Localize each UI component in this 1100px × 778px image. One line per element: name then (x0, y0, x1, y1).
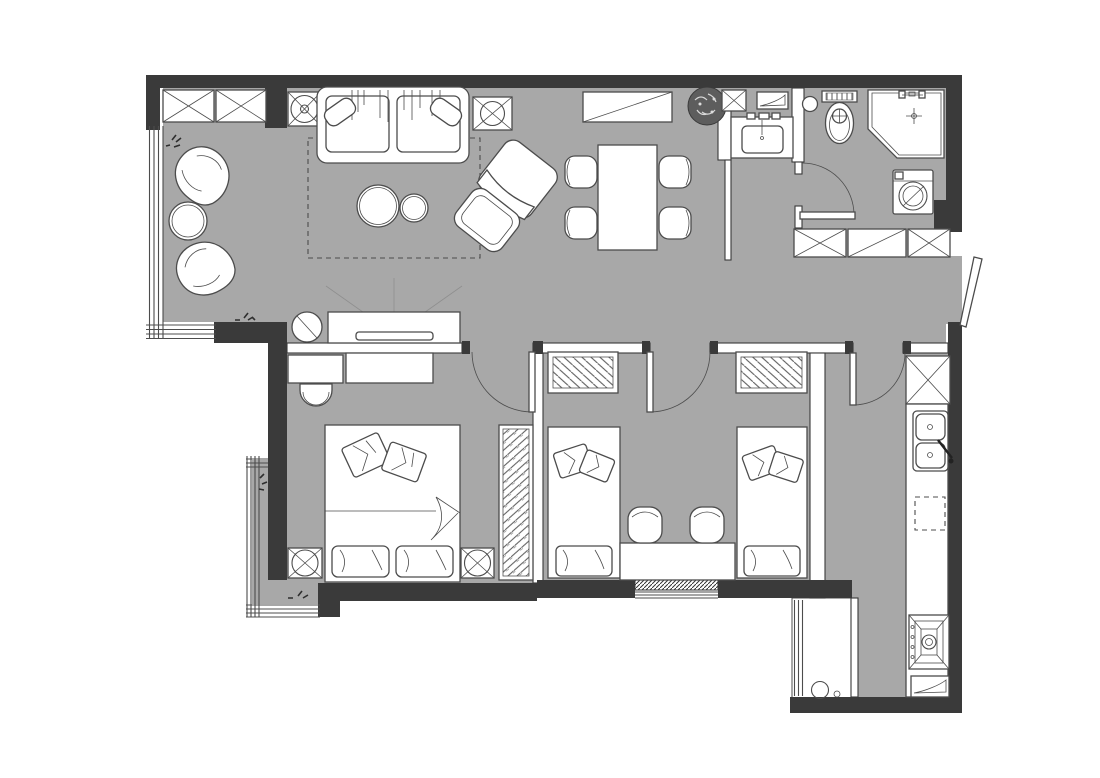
kids-bottom-wall-left (537, 580, 635, 598)
bed-pillow (744, 546, 800, 576)
bottom-wall (790, 697, 962, 713)
single-bed (737, 427, 807, 578)
coffee-table-small (400, 194, 428, 222)
single-bed (548, 427, 620, 578)
round-side-table (169, 202, 207, 240)
dining-chair (659, 207, 691, 239)
master-bottom-notch (318, 593, 340, 617)
wardrobe-pier-wall (265, 88, 287, 128)
potted-plant (688, 87, 726, 125)
bed-pillow (556, 546, 612, 576)
door-post-cap (903, 341, 911, 354)
master-balcony-floor-lower (252, 580, 318, 604)
headboard-radiator (548, 352, 618, 393)
side-table (473, 97, 512, 130)
built-in-wardrobe (163, 90, 266, 122)
hall-wardrobe (794, 229, 950, 257)
sideboard (583, 92, 672, 122)
waste-bin (803, 97, 818, 112)
lamp-side-table (288, 92, 321, 126)
tv (356, 332, 433, 340)
washing-machine (893, 170, 933, 214)
desk-chair (628, 507, 662, 543)
duct-shaft (722, 90, 746, 111)
vanity-sink (731, 113, 793, 158)
service-balcony-floor (792, 598, 854, 698)
kitchen-fixtures (906, 356, 954, 697)
three-seat-sofa (317, 87, 469, 163)
dresser-unit (288, 355, 343, 383)
entry-door (960, 257, 982, 327)
door-post-cap (845, 341, 853, 354)
service-balcony-divider (851, 598, 858, 697)
floor-plan-canvas (0, 0, 1100, 778)
vanity-toilet-wall (792, 88, 804, 162)
cooktop (909, 615, 949, 669)
double-bowl-sink (913, 411, 954, 471)
radiator-panel (499, 425, 533, 580)
kids-bottom-wall-right (718, 580, 852, 598)
double-bed (325, 425, 460, 582)
tall-cabinet-fridge (906, 356, 950, 404)
kids-kitchen-wall (810, 353, 825, 598)
shared-desk (620, 543, 735, 580)
coffee-table-large (357, 185, 399, 227)
bath-door-post-top (795, 162, 802, 174)
nightstand-with-lamp (461, 548, 494, 578)
dining-chair (565, 156, 597, 188)
master-left-wall (268, 343, 287, 580)
top-wall (148, 75, 962, 88)
master-bottom-wall (318, 583, 537, 601)
tv-console (328, 312, 460, 343)
dresser-unit (346, 353, 433, 383)
door-post-cap (710, 341, 718, 354)
dining-chair (659, 156, 691, 188)
second-bedroom-window (635, 578, 718, 598)
bay-bottom-wall (214, 322, 287, 343)
nightstand-with-lamp (288, 548, 322, 578)
floor-plan-drawing (0, 0, 1100, 778)
desk-chair (690, 507, 724, 543)
vent-hatch (911, 676, 949, 697)
corridor-floor (214, 322, 946, 343)
headboard-radiator (736, 352, 807, 393)
dining-table (598, 145, 657, 250)
top-left-corner-wall (146, 75, 160, 130)
hall-screen-wall (725, 160, 731, 260)
entry-threshold-floor (944, 256, 962, 324)
door-post-cap (462, 341, 470, 354)
accent-round-table (292, 312, 322, 342)
dining-chair (565, 207, 597, 239)
bath-corner-block (934, 200, 962, 232)
vent-hatch (757, 92, 788, 109)
master-top-wall (287, 343, 462, 353)
